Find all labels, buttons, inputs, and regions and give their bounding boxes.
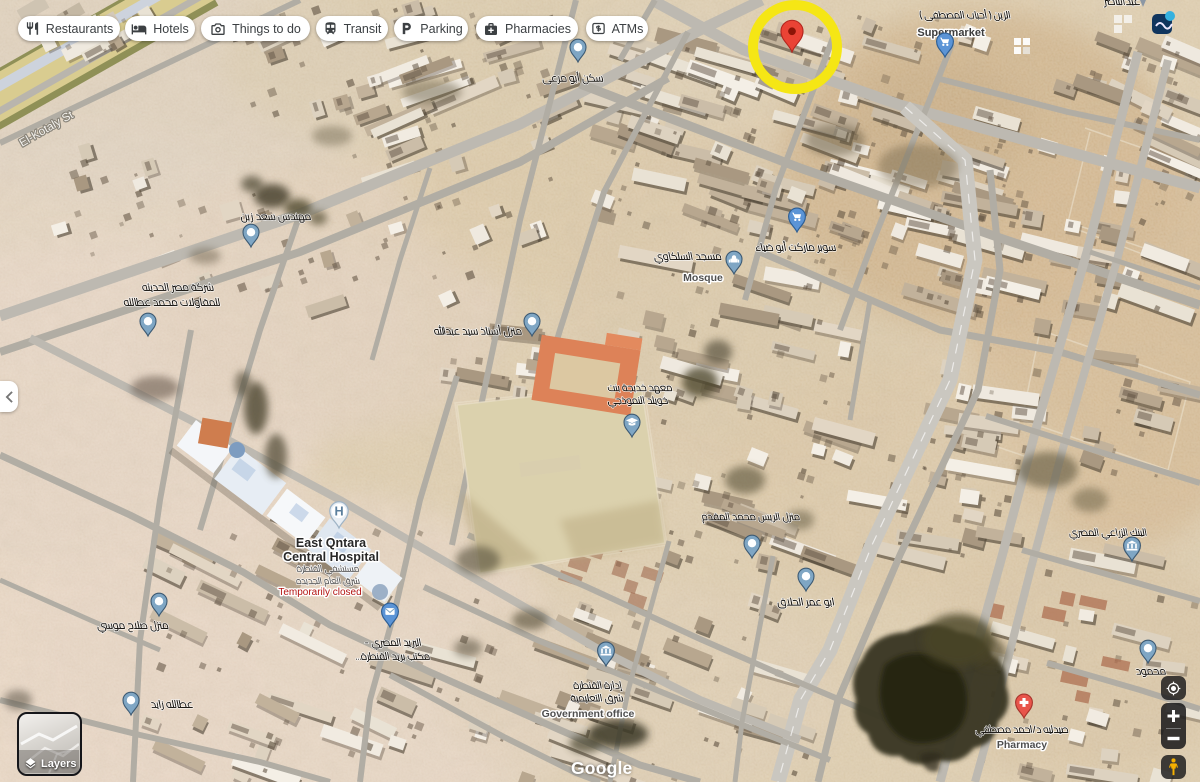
svg-text:Temporarily closed: Temporarily closed bbox=[278, 587, 361, 598]
svg-text:Mosque: Mosque bbox=[683, 272, 723, 284]
svg-text:Government office: Government office bbox=[542, 708, 635, 720]
svg-text:East Qntara: East Qntara bbox=[296, 536, 367, 550]
svg-text:Central Hospital: Central Hospital bbox=[283, 550, 379, 564]
svg-text:H: H bbox=[334, 504, 343, 518]
svg-text:Pharmacy: Pharmacy bbox=[997, 739, 1047, 751]
